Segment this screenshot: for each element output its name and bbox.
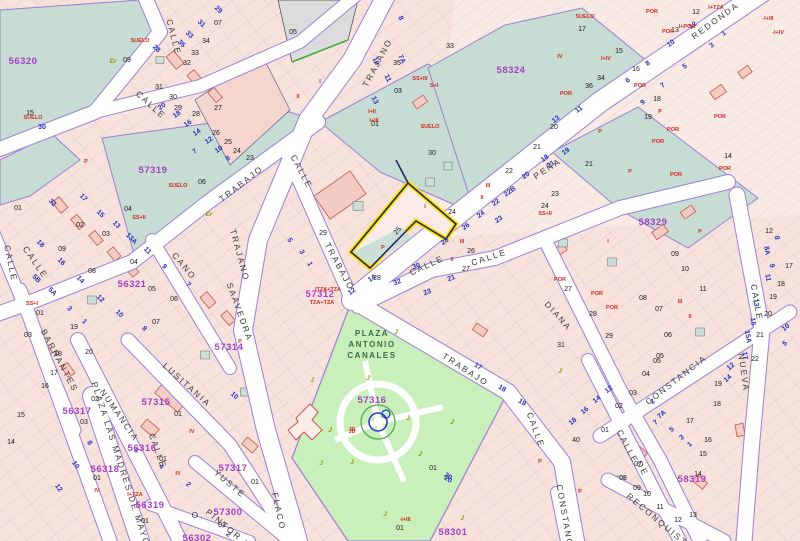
svg-text:02: 02 xyxy=(615,403,623,410)
svg-text:30: 30 xyxy=(428,150,436,157)
svg-text:25: 25 xyxy=(224,139,232,146)
svg-text:P: P xyxy=(628,169,632,175)
block-id-58301: 58301 xyxy=(439,527,468,538)
svg-text:15: 15 xyxy=(699,451,707,458)
svg-text:23: 23 xyxy=(551,191,559,198)
svg-text:14: 14 xyxy=(724,153,732,160)
svg-text:J: J xyxy=(383,511,387,518)
svg-text:09: 09 xyxy=(633,485,641,492)
svg-text:SS+II: SS+II xyxy=(132,215,146,221)
svg-text:11: 11 xyxy=(763,273,771,282)
block-id-57300: 57300 xyxy=(214,507,243,518)
svg-text:PLAZA: PLAZA xyxy=(355,329,389,338)
svg-text:01: 01 xyxy=(93,475,101,482)
svg-text:J: J xyxy=(350,459,354,466)
patio xyxy=(156,57,164,64)
svg-text:III: III xyxy=(678,299,683,305)
svg-text:14: 14 xyxy=(7,439,15,446)
block-id-56318: 56318 xyxy=(91,464,120,475)
block-id-57312: 57312 xyxy=(306,289,335,300)
svg-text:16: 16 xyxy=(704,437,712,444)
svg-text:03: 03 xyxy=(394,88,402,95)
svg-text:24: 24 xyxy=(233,148,241,155)
svg-text:-I+IV: -I+IV xyxy=(772,30,784,36)
svg-text:II: II xyxy=(296,94,300,100)
svg-text:P: P xyxy=(658,109,662,115)
svg-text:J: J xyxy=(558,368,562,375)
svg-text:SS+III: SS+III xyxy=(412,76,428,82)
svg-text:23: 23 xyxy=(246,155,254,162)
svg-text:POR: POR xyxy=(667,127,679,133)
block-id-57315: 57315 xyxy=(142,397,171,408)
svg-text:P: P xyxy=(538,459,542,465)
svg-text:10: 10 xyxy=(643,491,651,498)
svg-text:07: 07 xyxy=(152,319,160,326)
svg-text:SUELO: SUELO xyxy=(24,115,44,121)
svg-text:01: 01 xyxy=(601,427,609,434)
svg-text:21: 21 xyxy=(585,161,593,168)
block-id-57319: 57319 xyxy=(139,165,168,176)
svg-text:-I+III: -I+III xyxy=(762,16,774,22)
svg-text:29: 29 xyxy=(605,333,613,340)
svg-text:01: 01 xyxy=(14,205,22,212)
svg-text:05: 05 xyxy=(148,286,156,293)
block-id-56302: 56302 xyxy=(183,533,212,541)
svg-text:P: P xyxy=(84,159,88,165)
svg-text:III: III xyxy=(486,183,491,189)
svg-text:POR: POR xyxy=(634,83,646,89)
svg-text:I+II: I+II xyxy=(368,109,376,115)
svg-text:28: 28 xyxy=(192,111,200,118)
patio xyxy=(696,328,705,336)
svg-text:17: 17 xyxy=(578,26,586,33)
svg-text:05: 05 xyxy=(653,358,661,365)
svg-text:J: J xyxy=(328,427,332,434)
svg-text:36: 36 xyxy=(585,83,593,90)
svg-text:31: 31 xyxy=(557,342,565,349)
svg-text:J: J xyxy=(310,377,314,384)
svg-text:08: 08 xyxy=(619,475,627,482)
block-id-58329: 58329 xyxy=(639,217,668,228)
svg-text:10: 10 xyxy=(681,266,689,273)
svg-text:29: 29 xyxy=(319,230,327,237)
svg-text:26: 26 xyxy=(212,130,220,137)
svg-text:26: 26 xyxy=(467,248,475,255)
svg-text:17: 17 xyxy=(785,263,793,270)
svg-text:28: 28 xyxy=(589,311,597,318)
svg-text:01: 01 xyxy=(36,310,44,317)
svg-text:33: 33 xyxy=(191,50,199,57)
svg-text:11: 11 xyxy=(656,504,663,511)
block-id-56316: 56316 xyxy=(128,443,157,454)
svg-text:J: J xyxy=(319,460,323,467)
svg-text:02: 02 xyxy=(76,222,84,229)
patio xyxy=(353,202,363,211)
svg-text:12: 12 xyxy=(674,517,682,524)
block-id-58319: 58319 xyxy=(678,474,707,485)
svg-text:22: 22 xyxy=(505,168,513,175)
svg-text:01: 01 xyxy=(251,479,259,486)
svg-text:P: P xyxy=(381,245,385,251)
svg-text:19: 19 xyxy=(644,114,652,121)
svg-text:POR: POR xyxy=(670,172,682,178)
svg-text:SUELO: SUELO xyxy=(131,38,151,44)
svg-text:16: 16 xyxy=(632,66,640,73)
svg-text:40: 40 xyxy=(572,437,580,444)
svg-text:04: 04 xyxy=(642,371,650,378)
svg-text:20: 20 xyxy=(85,349,93,356)
svg-text:01: 01 xyxy=(174,411,182,418)
patio xyxy=(444,162,452,170)
block-id-57317: 57317 xyxy=(219,463,248,474)
svg-text:15: 15 xyxy=(615,48,623,55)
svg-text:II: II xyxy=(688,314,692,320)
svg-text:30: 30 xyxy=(38,124,46,131)
block-id-56320: 56320 xyxy=(9,56,38,67)
building-footprint xyxy=(735,423,745,436)
svg-text:SUELO: SUELO xyxy=(169,183,189,189)
svg-text:SS+II: SS+II xyxy=(538,211,552,217)
svg-text:J: J xyxy=(406,415,410,422)
svg-text:19: 19 xyxy=(70,324,78,331)
svg-text:POR: POR xyxy=(554,277,566,283)
svg-text:31: 31 xyxy=(155,84,163,91)
svg-text:19: 19 xyxy=(714,381,722,388)
svg-text:09: 09 xyxy=(58,246,66,253)
patio xyxy=(201,351,210,359)
svg-text:21: 21 xyxy=(756,332,764,339)
svg-text:32: 32 xyxy=(183,60,191,67)
svg-text:S+I: S+I xyxy=(430,83,439,89)
svg-text:30: 30 xyxy=(169,94,177,101)
svg-text:07: 07 xyxy=(655,306,663,313)
svg-text:P: P xyxy=(598,129,602,135)
svg-text:13: 13 xyxy=(689,512,697,519)
cadastral-map-viewport[interactable]: 0915060530292426272835330301073433323130… xyxy=(0,0,800,541)
svg-text:IV: IV xyxy=(94,488,100,494)
svg-text:POR: POR xyxy=(714,114,726,120)
svg-text:TZA+TZA: TZA+TZA xyxy=(310,300,335,306)
svg-text:Er: Er xyxy=(206,211,213,218)
svg-text:Er: Er xyxy=(110,58,117,65)
svg-text:I+POR: I+POR xyxy=(679,24,696,30)
svg-text:09: 09 xyxy=(123,57,131,64)
svg-text:JD: JD xyxy=(348,427,355,433)
svg-text:11: 11 xyxy=(699,286,706,293)
svg-text:03: 03 xyxy=(102,231,110,238)
svg-text:ANTONIO: ANTONIO xyxy=(348,340,395,349)
svg-text:IV: IV xyxy=(557,54,563,60)
svg-text:01: 01 xyxy=(396,525,404,532)
svg-text:SUELO: SUELO xyxy=(576,14,596,20)
patio xyxy=(608,258,617,266)
svg-text:12: 12 xyxy=(692,9,700,16)
svg-text:27: 27 xyxy=(462,266,470,273)
svg-text:J: J xyxy=(450,419,454,426)
svg-text:27: 27 xyxy=(214,105,222,112)
svg-text:17: 17 xyxy=(686,418,694,425)
svg-text:SS+I: SS+I xyxy=(26,301,39,307)
svg-text:34: 34 xyxy=(597,75,605,82)
svg-text:POR: POR xyxy=(591,291,603,297)
svg-text:-I+III: -I+III xyxy=(399,517,411,523)
block-id-56321: 56321 xyxy=(118,279,147,290)
svg-text:03: 03 xyxy=(24,332,32,339)
svg-text:04: 04 xyxy=(124,206,132,213)
svg-text:15: 15 xyxy=(17,412,25,419)
block-id-58324: 58324 xyxy=(497,65,526,76)
svg-text:POR: POR xyxy=(560,91,572,97)
svg-text:POR: POR xyxy=(719,166,731,172)
svg-text:IV: IV xyxy=(189,429,195,435)
svg-text:22: 22 xyxy=(751,356,759,363)
svg-text:J: J xyxy=(366,375,370,382)
svg-text:03: 03 xyxy=(80,419,88,426)
svg-text:01: 01 xyxy=(429,465,437,472)
svg-text:CANALES: CANALES xyxy=(347,351,396,360)
svg-text:04: 04 xyxy=(130,259,138,266)
svg-text:08: 08 xyxy=(639,295,647,302)
svg-text:19: 19 xyxy=(769,294,777,301)
svg-text:J: J xyxy=(394,329,398,336)
svg-text:06: 06 xyxy=(664,332,672,339)
block-id-57314: 57314 xyxy=(215,342,244,353)
svg-text:18: 18 xyxy=(653,96,661,103)
svg-text:06: 06 xyxy=(170,296,178,303)
svg-text:P: P xyxy=(578,489,582,495)
svg-text:18: 18 xyxy=(777,281,785,288)
svg-text:SUELO: SUELO xyxy=(421,124,441,130)
svg-text:III: III xyxy=(460,239,465,245)
svg-text:J: J xyxy=(418,451,422,458)
svg-text:18: 18 xyxy=(713,401,721,408)
svg-text:I+III: I+III xyxy=(369,118,379,124)
svg-text:27: 27 xyxy=(564,286,572,293)
svg-text:24: 24 xyxy=(448,209,456,216)
svg-text:16: 16 xyxy=(41,383,49,390)
block-id-57316: 57316 xyxy=(358,395,387,406)
svg-text:05: 05 xyxy=(289,29,297,36)
svg-text:24: 24 xyxy=(541,203,549,210)
svg-text:POR: POR xyxy=(646,9,658,15)
svg-text:IV: IV xyxy=(175,471,181,477)
svg-text:12: 12 xyxy=(765,228,773,235)
svg-text:33: 33 xyxy=(446,43,454,50)
svg-text:34: 34 xyxy=(202,38,210,45)
svg-text:03: 03 xyxy=(629,390,637,397)
svg-text:II: II xyxy=(480,195,484,201)
svg-text:P: P xyxy=(698,229,702,235)
svg-text:07: 07 xyxy=(214,20,222,27)
svg-text:06: 06 xyxy=(198,179,206,186)
svg-text:O.: O. xyxy=(192,510,205,520)
svg-text:21: 21 xyxy=(533,144,541,151)
svg-text:J: J xyxy=(460,515,464,522)
block-id-56317: 56317 xyxy=(63,406,92,417)
svg-text:POR: POR xyxy=(652,139,664,145)
svg-text:17: 17 xyxy=(50,370,58,377)
svg-text:II: II xyxy=(450,257,454,263)
svg-text:I+IV: I+IV xyxy=(601,56,611,62)
svg-text:POR: POR xyxy=(606,305,618,311)
svg-text:08: 08 xyxy=(88,268,96,275)
block-id-56319: 56319 xyxy=(136,500,165,511)
svg-text:09: 09 xyxy=(671,251,679,258)
svg-text:POR: POR xyxy=(662,29,674,35)
patio xyxy=(426,178,435,186)
cadastral-map[interactable]: 0915060530292426272835330301073433323130… xyxy=(0,0,800,541)
